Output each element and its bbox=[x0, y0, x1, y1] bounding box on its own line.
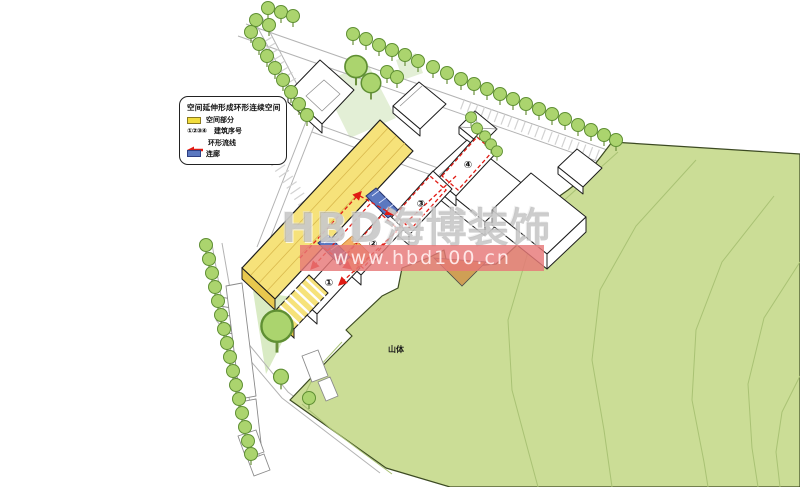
tree bbox=[347, 28, 360, 46]
building-numbers-icon: ①②③④ bbox=[187, 127, 209, 135]
legend-item-label: 连廊 bbox=[206, 149, 220, 159]
yellow-swatch-icon bbox=[187, 117, 201, 124]
legend-item-label: 空间部分 bbox=[206, 115, 234, 125]
tree bbox=[559, 113, 572, 131]
legend-item-label: 建筑序号 bbox=[214, 126, 242, 136]
red-arrow-icon bbox=[187, 139, 203, 147]
building-number-1: ① bbox=[325, 278, 333, 289]
site-plan: 山体 bbox=[0, 0, 800, 487]
legend-item-numbers: ①②③④ 建筑序号 bbox=[187, 127, 280, 135]
tree bbox=[360, 33, 373, 51]
tree bbox=[427, 61, 440, 79]
legend: 空间延伸形成环形连续空间 空间部分 ①②③④ 建筑序号 环形流线 连廊 bbox=[179, 96, 287, 165]
tree bbox=[520, 98, 533, 116]
tree bbox=[455, 73, 468, 91]
legend-item-label: 环形流线 bbox=[208, 138, 236, 148]
tree bbox=[391, 71, 404, 89]
tree bbox=[491, 146, 502, 161]
tree bbox=[262, 2, 275, 20]
tree bbox=[468, 78, 481, 96]
blue-swatch-icon bbox=[187, 150, 201, 157]
building-block bbox=[393, 82, 446, 136]
building-number-4: ④ bbox=[464, 160, 472, 171]
corridor-link bbox=[366, 188, 398, 218]
building-number-2: ② bbox=[369, 239, 377, 250]
building-number-3: ③ bbox=[417, 199, 425, 210]
tree bbox=[507, 93, 520, 111]
tree bbox=[373, 39, 386, 57]
legend-title: 空间延伸形成环形连续空间 bbox=[187, 102, 280, 113]
tree bbox=[533, 103, 546, 121]
tree bbox=[275, 6, 288, 24]
tree bbox=[386, 44, 399, 62]
tree bbox=[572, 119, 585, 137]
tree bbox=[287, 10, 300, 28]
mountain-label: 山体 bbox=[388, 344, 405, 354]
site-plan-svg: 山体 bbox=[0, 0, 800, 487]
tree bbox=[546, 108, 559, 126]
tree bbox=[585, 124, 598, 142]
tree bbox=[441, 67, 454, 85]
legend-item-space: 空间部分 bbox=[187, 116, 280, 124]
tree bbox=[481, 83, 494, 101]
legend-item-route: 环形流线 bbox=[187, 139, 280, 147]
tree bbox=[274, 369, 289, 389]
legend-item-corridor: 连廊 bbox=[187, 150, 280, 158]
tree bbox=[598, 129, 611, 147]
tree bbox=[494, 88, 507, 106]
